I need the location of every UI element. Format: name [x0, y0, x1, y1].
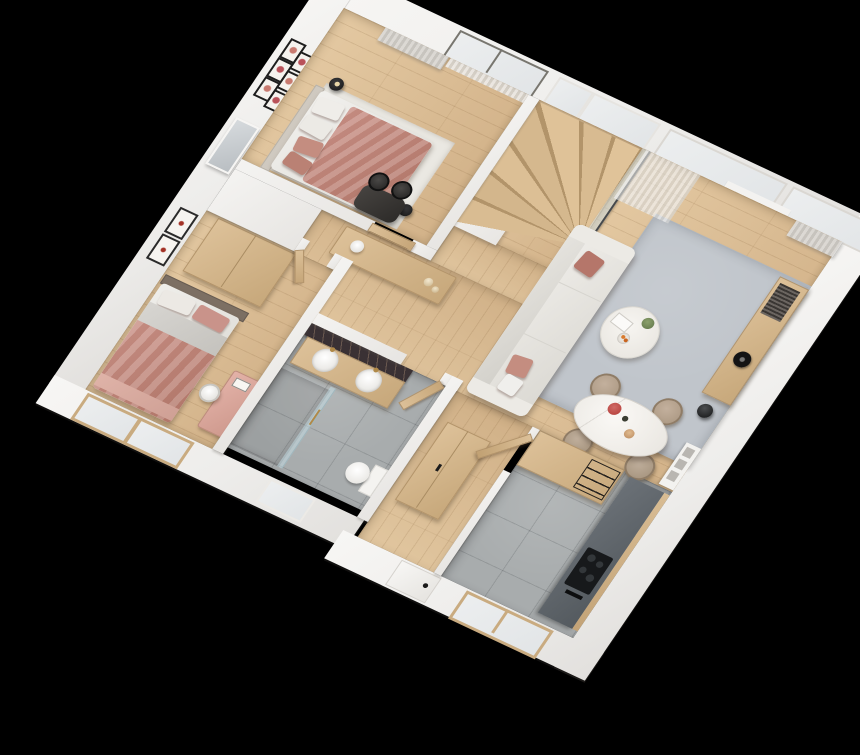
- scene-background: [0, 0, 860, 755]
- floor-plan: [85, 8, 841, 623]
- bedroom2-door: [295, 250, 305, 284]
